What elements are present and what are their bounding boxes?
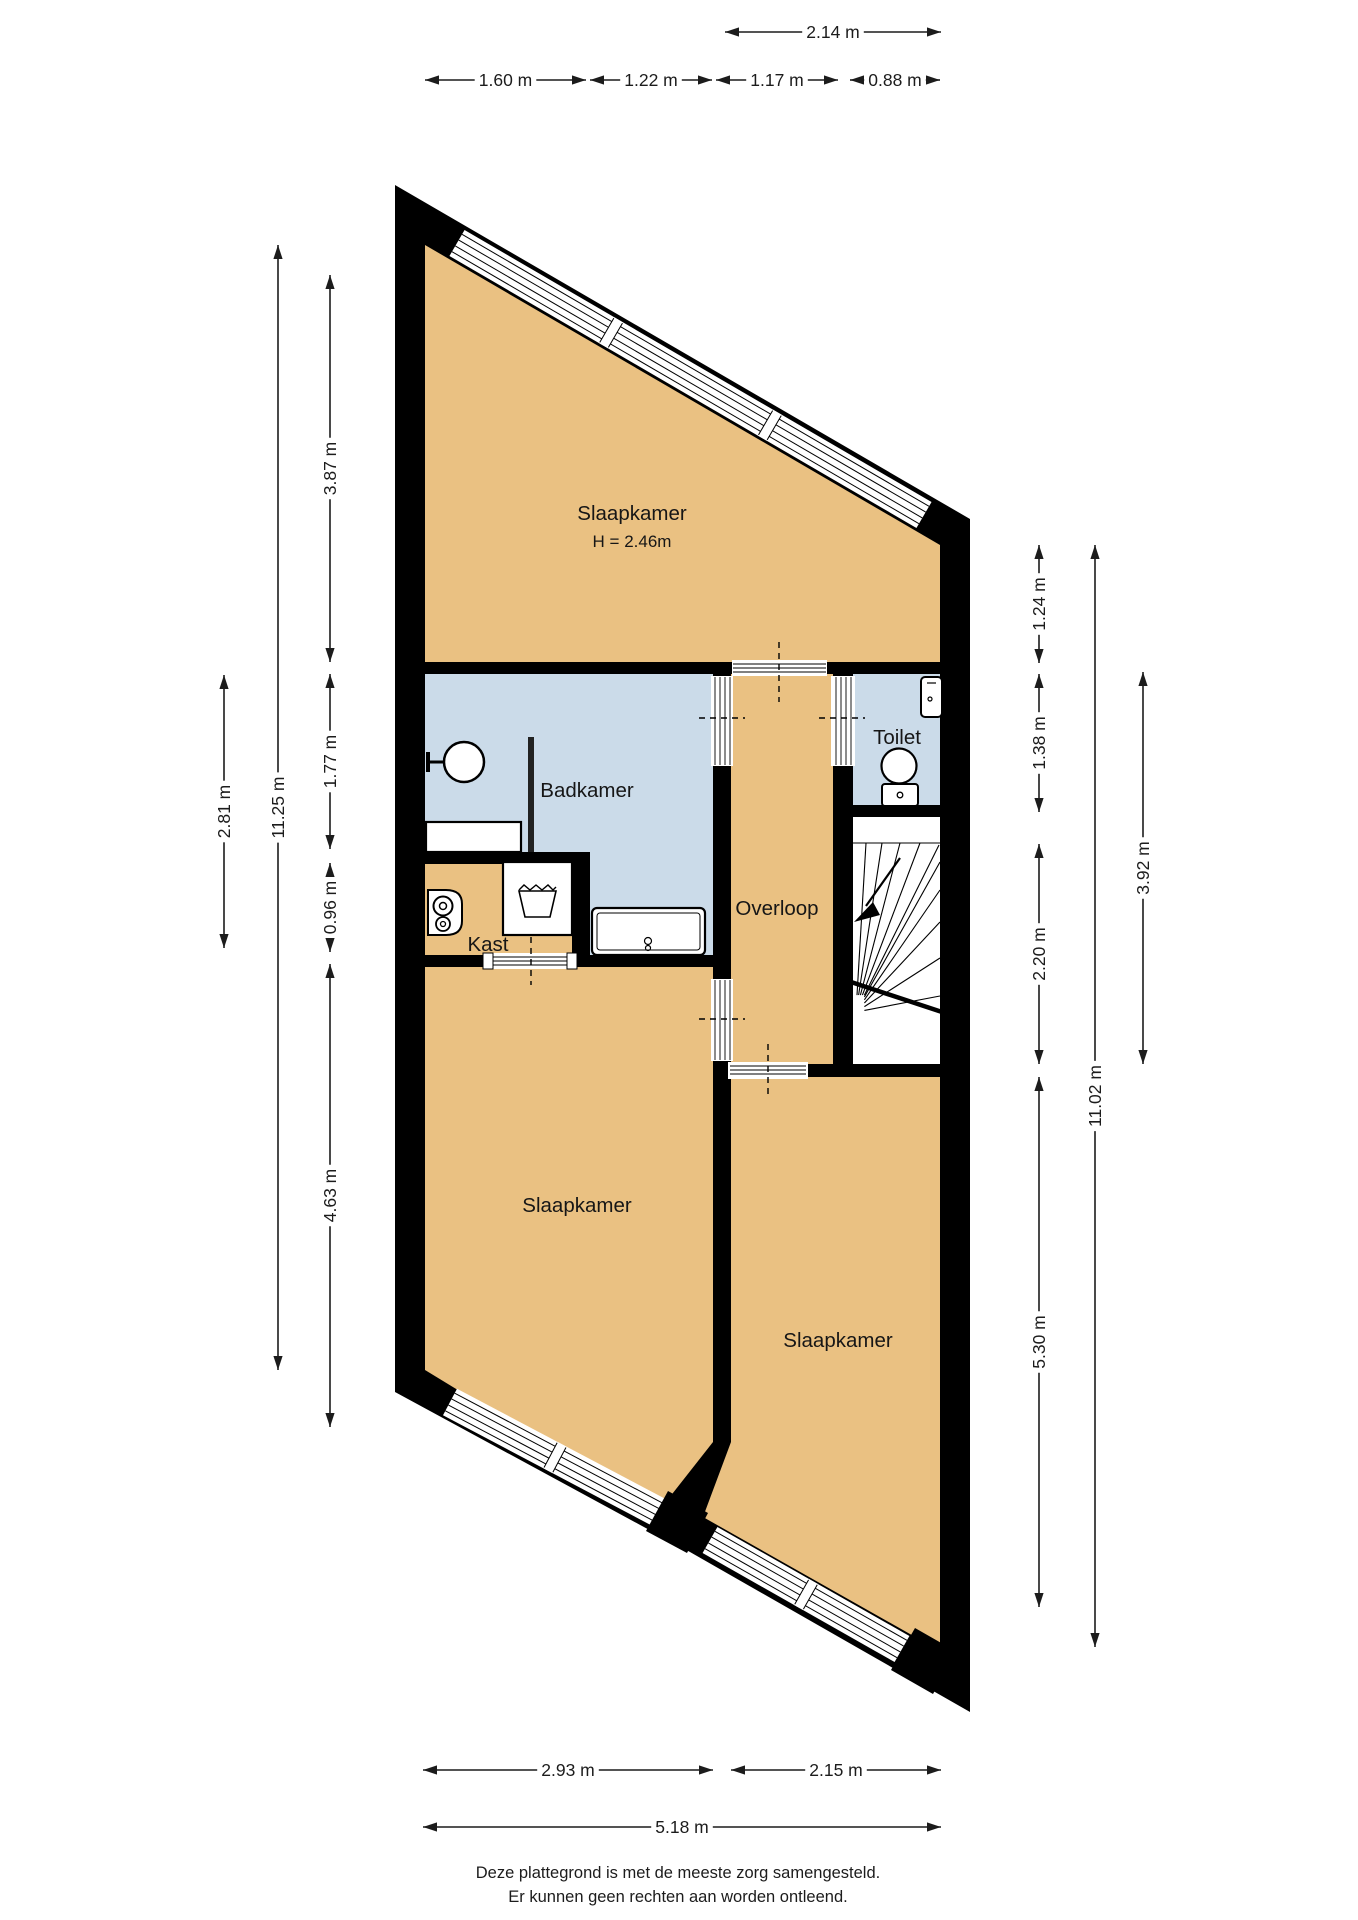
dimension-arrowhead (1034, 649, 1043, 663)
dimension: 2.15 m (731, 1760, 941, 1780)
dimension-arrowhead (716, 75, 730, 84)
dimension-arrowhead (699, 1765, 713, 1774)
room-slaapkamer-top (425, 245, 940, 662)
dimension: 3.92 m (1133, 672, 1153, 1064)
dimension-label: 1.60 m (479, 70, 533, 90)
dimension-arrowhead (1034, 545, 1043, 559)
footer: Deze plattegrond is met de meeste zorg s… (476, 1864, 880, 1906)
footer-line-1: Deze plattegrond is met de meeste zorg s… (476, 1864, 880, 1882)
dimension-arrowhead (927, 1765, 941, 1774)
dimension: 5.18 m (423, 1817, 941, 1837)
dimension-label: 0.96 m (320, 881, 340, 935)
dimension: 5.30 m (1029, 1077, 1049, 1607)
dimension-label: 1.77 m (320, 735, 340, 789)
dimension-arrowhead (325, 275, 334, 289)
dimension-arrowhead (1034, 1050, 1043, 1064)
room-overloop (731, 674, 833, 1064)
footer-line-2: Er kunnen geen rechten aan worden ontlee… (508, 1888, 847, 1906)
dimension-arrowhead (1138, 1050, 1147, 1064)
dimension-arrowhead (1034, 798, 1043, 812)
dimension-arrowhead (1090, 545, 1099, 559)
dimension-arrowhead (572, 75, 586, 84)
dimension: 1.22 m (590, 70, 712, 90)
dimension-arrowhead (1138, 672, 1147, 686)
dimension-arrowhead (824, 75, 838, 84)
dimension-label: 5.18 m (655, 1817, 709, 1837)
dimension-label: 11.02 m (1085, 1065, 1105, 1127)
dimension: 2.93 m (423, 1760, 713, 1780)
dimension-arrowhead (273, 1356, 282, 1370)
dimension-arrowhead (731, 1765, 745, 1774)
window-mullion-gap (802, 1592, 811, 1597)
label-slaapkamer-top: Slaapkamer (577, 502, 687, 525)
dimension-arrowhead (325, 648, 334, 662)
dimension-arrowhead (926, 75, 940, 84)
dimension-arrowhead (325, 964, 334, 978)
dimension-arrowhead (1034, 1593, 1043, 1607)
dimension: 2.14 m (725, 22, 941, 42)
window-mullion-gap (551, 1455, 560, 1460)
window-mullion-gap (766, 423, 775, 428)
dimension-arrowhead (219, 675, 228, 689)
dimension-arrowhead (423, 1822, 437, 1831)
dimension-arrowhead (325, 938, 334, 952)
dimension: 3.87 m (320, 275, 340, 662)
dimension-label: 2.20 m (1029, 927, 1049, 981)
dimension-arrowhead (850, 75, 864, 84)
shower-partition (528, 737, 534, 852)
dimension-label: 2.14 m (806, 22, 860, 42)
dimension: 1.60 m (425, 70, 586, 90)
dimension-label: 5.30 m (1029, 1315, 1049, 1369)
dimension-arrowhead (927, 1822, 941, 1831)
dimension: 4.63 m (320, 964, 340, 1427)
bathtub-icon (592, 908, 705, 955)
floorplan-page: Slaapkamer H = 2.46m Badkamer Toilet Ove… (0, 0, 1358, 1920)
toilet-icon (882, 749, 919, 807)
washing-machine-icon (503, 862, 572, 935)
dimension-arrowhead (325, 1413, 334, 1427)
label-ceiling-height: H = 2.46m (593, 532, 672, 551)
dimension-arrowhead (927, 27, 941, 36)
dimension-arrowhead (325, 674, 334, 688)
window-mullion-gap (607, 330, 616, 335)
dimension-label: 0.88 m (868, 70, 922, 90)
dimension: 1.38 m (1029, 674, 1049, 812)
dimension-arrowhead (219, 934, 228, 948)
dimension: 2.20 m (1029, 844, 1049, 1064)
dimension-arrowhead (698, 75, 712, 84)
dimension-label: 2.93 m (541, 1760, 595, 1780)
boiler-icon (428, 890, 462, 935)
dimension: 1.24 m (1029, 545, 1049, 663)
dimension-label: 2.15 m (809, 1760, 863, 1780)
dimension-arrowhead (1034, 1077, 1043, 1091)
dimension-label: 1.17 m (750, 70, 804, 90)
dimension-label: 1.24 m (1029, 577, 1049, 631)
dimension-arrowhead (325, 863, 334, 877)
dimension-label: 1.22 m (624, 70, 678, 90)
dimension-label: 3.87 m (320, 442, 340, 496)
dimension-arrowhead (423, 1765, 437, 1774)
dimension-arrowhead (425, 75, 439, 84)
dimension: 0.88 m (850, 70, 940, 90)
dimension-arrowhead (1090, 1633, 1099, 1647)
dimension-arrowhead (1034, 844, 1043, 858)
dimension-label: 2.81 m (214, 785, 234, 839)
dimension-arrowhead (325, 835, 334, 849)
label-slaapkamer-right: Slaapkamer (783, 1329, 893, 1352)
dimension: 1.77 m (320, 674, 340, 849)
dimension: 1.17 m (716, 70, 838, 90)
dimension-label: 1.38 m (1029, 716, 1049, 770)
dimension-arrowhead (725, 27, 739, 36)
label-slaapkamer-left: Slaapkamer (522, 1194, 632, 1217)
label-kast: Kast (467, 933, 508, 956)
dimension-arrowhead (273, 245, 282, 259)
hand-basin-icon (921, 677, 942, 717)
washbasin-counter (426, 822, 521, 852)
dimension: 2.81 m (214, 675, 234, 948)
dimension-label: 3.92 m (1133, 841, 1153, 895)
dimension: 0.96 m (320, 863, 340, 952)
label-badkamer: Badkamer (540, 779, 634, 802)
floorplan-canvas: Slaapkamer H = 2.46m Badkamer Toilet Ove… (0, 0, 1358, 1920)
dimension-arrowhead (590, 75, 604, 84)
dimension: 11.02 m (1085, 545, 1105, 1647)
dimension-arrowhead (1034, 674, 1043, 688)
label-overloop: Overloop (735, 897, 818, 920)
dimension: 11.25 m (268, 245, 288, 1370)
label-toilet: Toilet (873, 726, 921, 749)
dimension-label: 11.25 m (268, 777, 288, 839)
dimension-label: 4.63 m (320, 1169, 340, 1223)
